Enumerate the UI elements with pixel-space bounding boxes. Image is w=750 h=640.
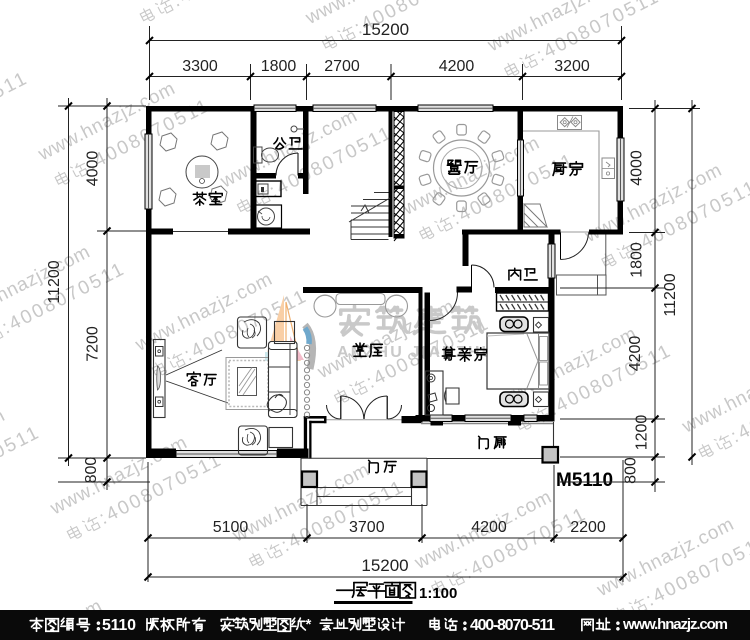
- svg-text:M5110: M5110: [556, 470, 613, 491]
- svg-text:11200: 11200: [662, 273, 679, 316]
- svg-text:5100: 5100: [213, 519, 249, 536]
- svg-text:*: *: [306, 616, 312, 633]
- svg-text:11200: 11200: [46, 260, 63, 303]
- svg-text:2700: 2700: [324, 58, 360, 75]
- svg-text:4000: 4000: [85, 151, 102, 187]
- svg-text:3700: 3700: [349, 519, 385, 536]
- svg-text:5110: 5110: [102, 617, 136, 634]
- svg-text:4000: 4000: [629, 150, 646, 186]
- svg-text:800: 800: [623, 457, 640, 484]
- svg-text:400-8070-511: 400-8070-511: [470, 617, 555, 634]
- svg-text:800: 800: [83, 457, 100, 484]
- svg-text:3200: 3200: [554, 58, 590, 75]
- svg-text:4200: 4200: [627, 336, 644, 372]
- svg-text:4200: 4200: [471, 519, 507, 536]
- svg-text:2200: 2200: [570, 519, 606, 536]
- svg-text:15200: 15200: [361, 556, 408, 575]
- svg-text:7200: 7200: [85, 326, 102, 362]
- svg-text:1800: 1800: [629, 242, 646, 278]
- svg-text:3300: 3300: [182, 58, 218, 75]
- svg-text:4200: 4200: [439, 58, 475, 75]
- svg-text:15200: 15200: [362, 20, 409, 39]
- svg-text:1800: 1800: [261, 58, 297, 75]
- svg-text:www.hnazjz.com: www.hnazjz.com: [622, 616, 728, 633]
- svg-text:1200: 1200: [634, 415, 651, 451]
- svg-text:1:100: 1:100: [419, 585, 457, 602]
